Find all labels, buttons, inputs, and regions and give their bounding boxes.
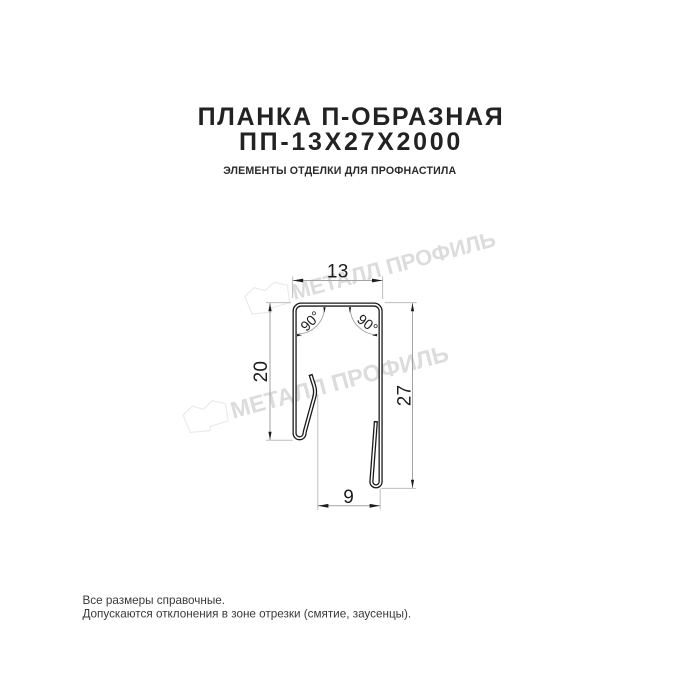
- svg-text:27: 27: [395, 385, 416, 407]
- svg-text:ЭЛЕМЕНТЫ ОТДЕЛКИ ДЛЯ ПРОФНАСТИ: ЭЛЕМЕНТЫ ОТДЕЛКИ ДЛЯ ПРОФНАСТИЛА: [223, 165, 456, 177]
- svg-text:20: 20: [251, 361, 272, 383]
- svg-text:ПЛАНКА П-ОБРАЗНАЯ: ПЛАНКА П-ОБРАЗНАЯ: [198, 103, 505, 131]
- svg-text:Все размеры справочные.: Все размеры справочные.: [83, 594, 225, 607]
- svg-text:МЕТАЛЛ ПРОФИЛЬ: МЕТАЛЛ ПРОФИЛЬ: [289, 226, 499, 305]
- svg-text:ПП-13Х27Х2000: ПП-13Х27Х2000: [239, 128, 463, 156]
- svg-text:13: 13: [327, 261, 349, 282]
- svg-text:9: 9: [343, 487, 354, 508]
- svg-text:90°: 90°: [298, 308, 324, 334]
- svg-text:Допускаются отклонения в зоне: Допускаются отклонения в зоне отрезки (с…: [83, 607, 412, 620]
- svg-text:90°: 90°: [354, 311, 381, 337]
